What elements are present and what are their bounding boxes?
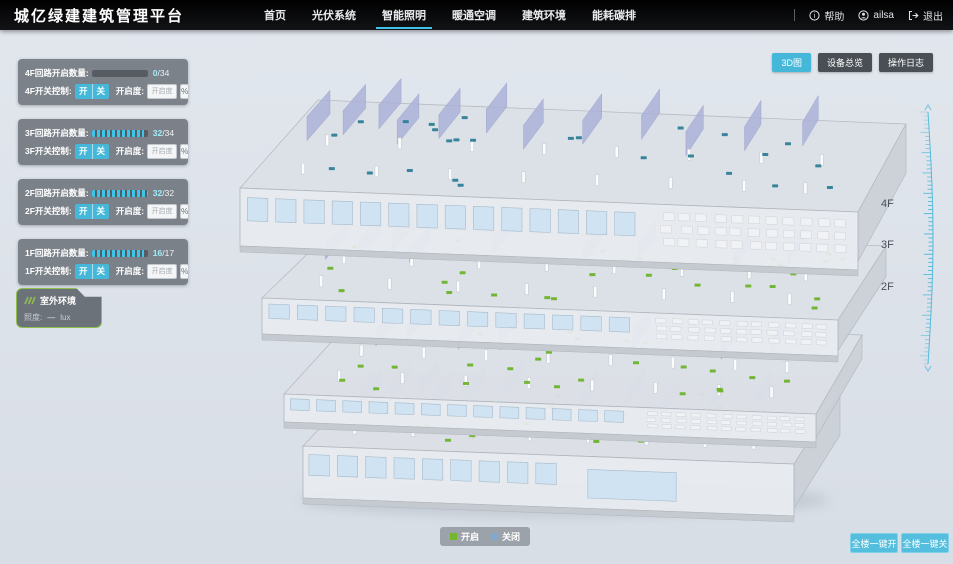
circuit-progress-bar [92,250,148,257]
percent-button[interactable]: % [180,144,189,159]
nav-item[interactable]: 智能照明 [382,0,426,30]
switch-off-button[interactable]: 关 [92,84,109,99]
light-status-legend: 开启 关闭 [440,527,530,546]
main-nav: 首页 光伏系统 智能照明 暖通空调 [264,0,636,30]
percent-button[interactable]: % [180,204,189,219]
legend-on-item: 开启 [450,530,479,543]
help-icon: i [809,10,820,21]
circuit-count-row: 4F回路开启数量: 0/34 [25,64,181,82]
logout-button[interactable]: 退出 [908,8,943,23]
nav-item[interactable]: 能耗碳排 [592,0,636,30]
svg-text:i: i [814,13,816,20]
floor-label[interactable]: 2F [881,281,894,293]
switch-off-button[interactable]: 关 [92,144,109,159]
outdoor-env-icon [24,296,36,305]
legend-off-label: 关闭 [502,530,520,543]
dimming-input[interactable] [147,144,177,159]
percent-button[interactable]: % [180,84,189,99]
switch-label: 2F开关控制: [25,205,72,217]
floor-control-panel: 2F回路开启数量: 32/32 2F开关控制: 开 关 开启度: % [18,179,188,225]
floor-control-panel: 3F回路开启数量: 32/34 3F开关控制: 开 关 开启度: % [18,119,188,165]
building-floor-4f [240,79,906,277]
switch-control-row: 3F开关控制: 开 关 开启度: % [25,142,181,160]
legend-off-item: 关闭 [491,530,520,543]
percent-button[interactable]: % [180,264,189,279]
circuit-count-label: 2F回路开启数量: [25,187,89,199]
active-tab-underline [376,27,432,29]
view-mode-button[interactable]: 操作日志 [879,53,933,72]
circuit-count-label: 3F回路开启数量: [25,127,89,139]
outdoor-env-title: 室外环境 [40,294,76,307]
circuit-progress-fill [92,190,148,197]
illuminance-unit: lux [60,313,70,322]
floor-zoom-ruler[interactable] [919,105,933,371]
view-mode-button[interactable]: 设备总览 [818,53,872,72]
floor-control-panel: 1F回路开启数量: 16/17 1F开关控制: 开 关 开启度: % [18,239,188,285]
nav-item-label: 能耗碳排 [592,7,636,23]
floor-control-panels: 4F回路开启数量: 0/34 4F开关控制: 开 关 开启度: % [18,59,188,285]
user-icon [858,10,869,21]
nav-item-label: 建筑环境 [522,7,566,23]
circuit-progress-fill [92,130,145,137]
outdoor-env-header: 室外环境 [24,294,94,307]
switch-label: 4F开关控制: [25,85,72,97]
user-button[interactable]: ailsa [858,10,894,21]
nav-item-label: 光伏系统 [312,7,356,23]
app-window: 城亿绿建建筑管理平台 首页 光伏系统 智能照明 暖通 [0,0,953,564]
circuit-progress-bar [92,130,148,137]
nav-item[interactable]: 光伏系统 [312,0,356,30]
legend-on-label: 开启 [461,530,479,543]
dimming-label: 开启度: [116,205,144,217]
switch-group: 开 关 [75,84,109,99]
illuminance-label: 照度: [24,312,42,323]
top-nav-bar: 城亿绿建建筑管理平台 首页 光伏系统 智能照明 暖通 [0,0,953,30]
nav-item[interactable]: 建筑环境 [522,0,566,30]
all-floors-button[interactable]: 全楼一键关 [901,533,949,553]
all-floors-button[interactable]: 全楼一键开 [850,533,898,553]
nav-item-label: 暖通空调 [452,7,496,23]
switch-on-button[interactable]: 开 [75,144,92,159]
floor-label[interactable]: 4F [881,198,894,210]
legend-off-swatch [491,533,498,540]
illuminance-value: — [47,313,55,322]
nav-item-label: 首页 [264,7,286,23]
nav-item-label: 智能照明 [382,7,426,23]
circuit-count-value: 32/32 [153,188,174,198]
floor-control-panel: 4F回路开启数量: 0/34 4F开关控制: 开 关 开启度: % [18,59,188,105]
dimming-input[interactable] [147,204,177,219]
switch-control-row: 4F开关控制: 开 关 开启度: % [25,82,181,100]
nav-item[interactable]: 首页 [264,0,286,30]
switch-on-button[interactable]: 开 [75,84,92,99]
user-menu: i 帮助 ailsa 退出 [794,8,943,23]
legend-on-swatch [450,533,457,540]
circuit-count-label: 4F回路开启数量: [25,67,89,79]
circuit-count-value: 0/34 [153,68,170,78]
circuit-count-label: 1F回路开启数量: [25,247,89,259]
global-control-buttons: 全楼一键开 全楼一键关 [850,533,949,553]
circuit-progress-fill [92,250,145,257]
switch-off-button[interactable]: 关 [92,204,109,219]
dimming-input[interactable] [147,264,177,279]
divider [794,9,795,21]
illuminance-row: 照度: — lux [24,312,94,323]
app-title: 城亿绿建建筑管理平台 [14,5,184,26]
circuit-count-row: 1F回路开启数量: 16/17 [25,244,181,262]
dimming-label: 开启度: [116,265,144,277]
circuit-progress-bar [92,70,148,77]
circuit-count-value: 32/34 [153,128,174,138]
switch-control-row: 1F开关控制: 开 关 开启度: % [25,262,181,280]
circuit-count-row: 3F回路开启数量: 32/34 [25,124,181,142]
circuit-count-row: 2F回路开启数量: 32/32 [25,184,181,202]
switch-off-button[interactable]: 关 [92,264,109,279]
username-label: ailsa [873,10,894,21]
switch-group: 开 关 [75,264,109,279]
dimming-input[interactable] [147,84,177,99]
switch-on-button[interactable]: 开 [75,204,92,219]
switch-label: 3F开关控制: [25,145,72,157]
circuit-progress-bar [92,190,148,197]
dimming-label: 开启度: [116,85,144,97]
help-button[interactable]: i 帮助 [809,8,844,23]
circuit-count-value: 16/17 [153,248,174,258]
view-mode-buttons: 3D图 设备总览 操作日志 [772,53,933,72]
dimming-label: 开启度: [116,145,144,157]
switch-group: 开 关 [75,144,109,159]
switch-group: 开 关 [75,204,109,219]
switch-label: 1F开关控制: [25,265,72,277]
floor-label[interactable]: 3F [881,239,894,251]
nav-item[interactable]: 暖通空调 [452,0,496,30]
logout-label: 退出 [923,8,943,23]
switch-on-button[interactable]: 开 [75,264,92,279]
switch-control-row: 2F开关控制: 开 关 开启度: % [25,202,181,220]
help-label: 帮助 [824,8,844,23]
logout-icon [908,10,919,21]
view-mode-button[interactable]: 3D图 [772,53,811,72]
